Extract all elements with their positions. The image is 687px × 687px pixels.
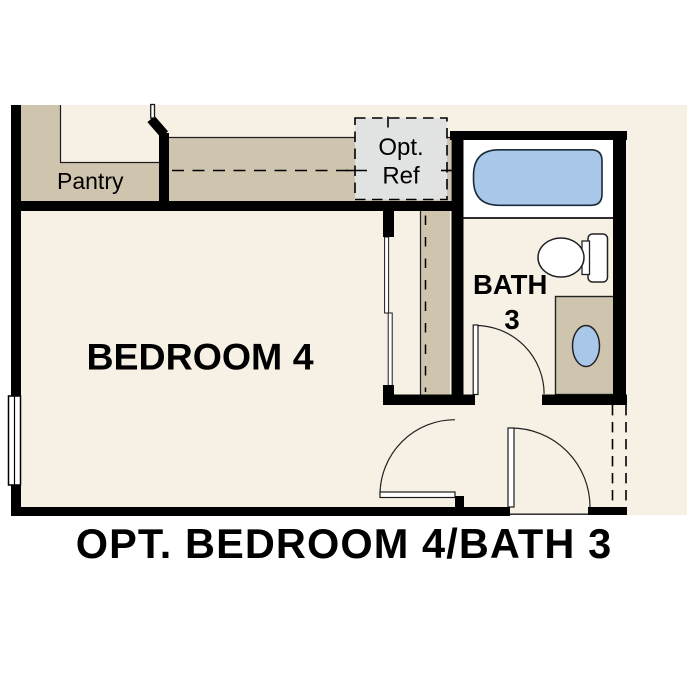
svg-text:BATH: BATH: [473, 269, 547, 300]
svg-text:OPT. BEDROOM 4/BATH 3: OPT. BEDROOM 4/BATH 3: [76, 520, 613, 567]
svg-text:Opt.: Opt.: [378, 134, 423, 161]
svg-text:3: 3: [504, 304, 519, 335]
svg-text:Ref: Ref: [382, 163, 420, 190]
svg-text:Pantry: Pantry: [57, 168, 124, 194]
svg-text:BEDROOM 4: BEDROOM 4: [86, 336, 313, 378]
